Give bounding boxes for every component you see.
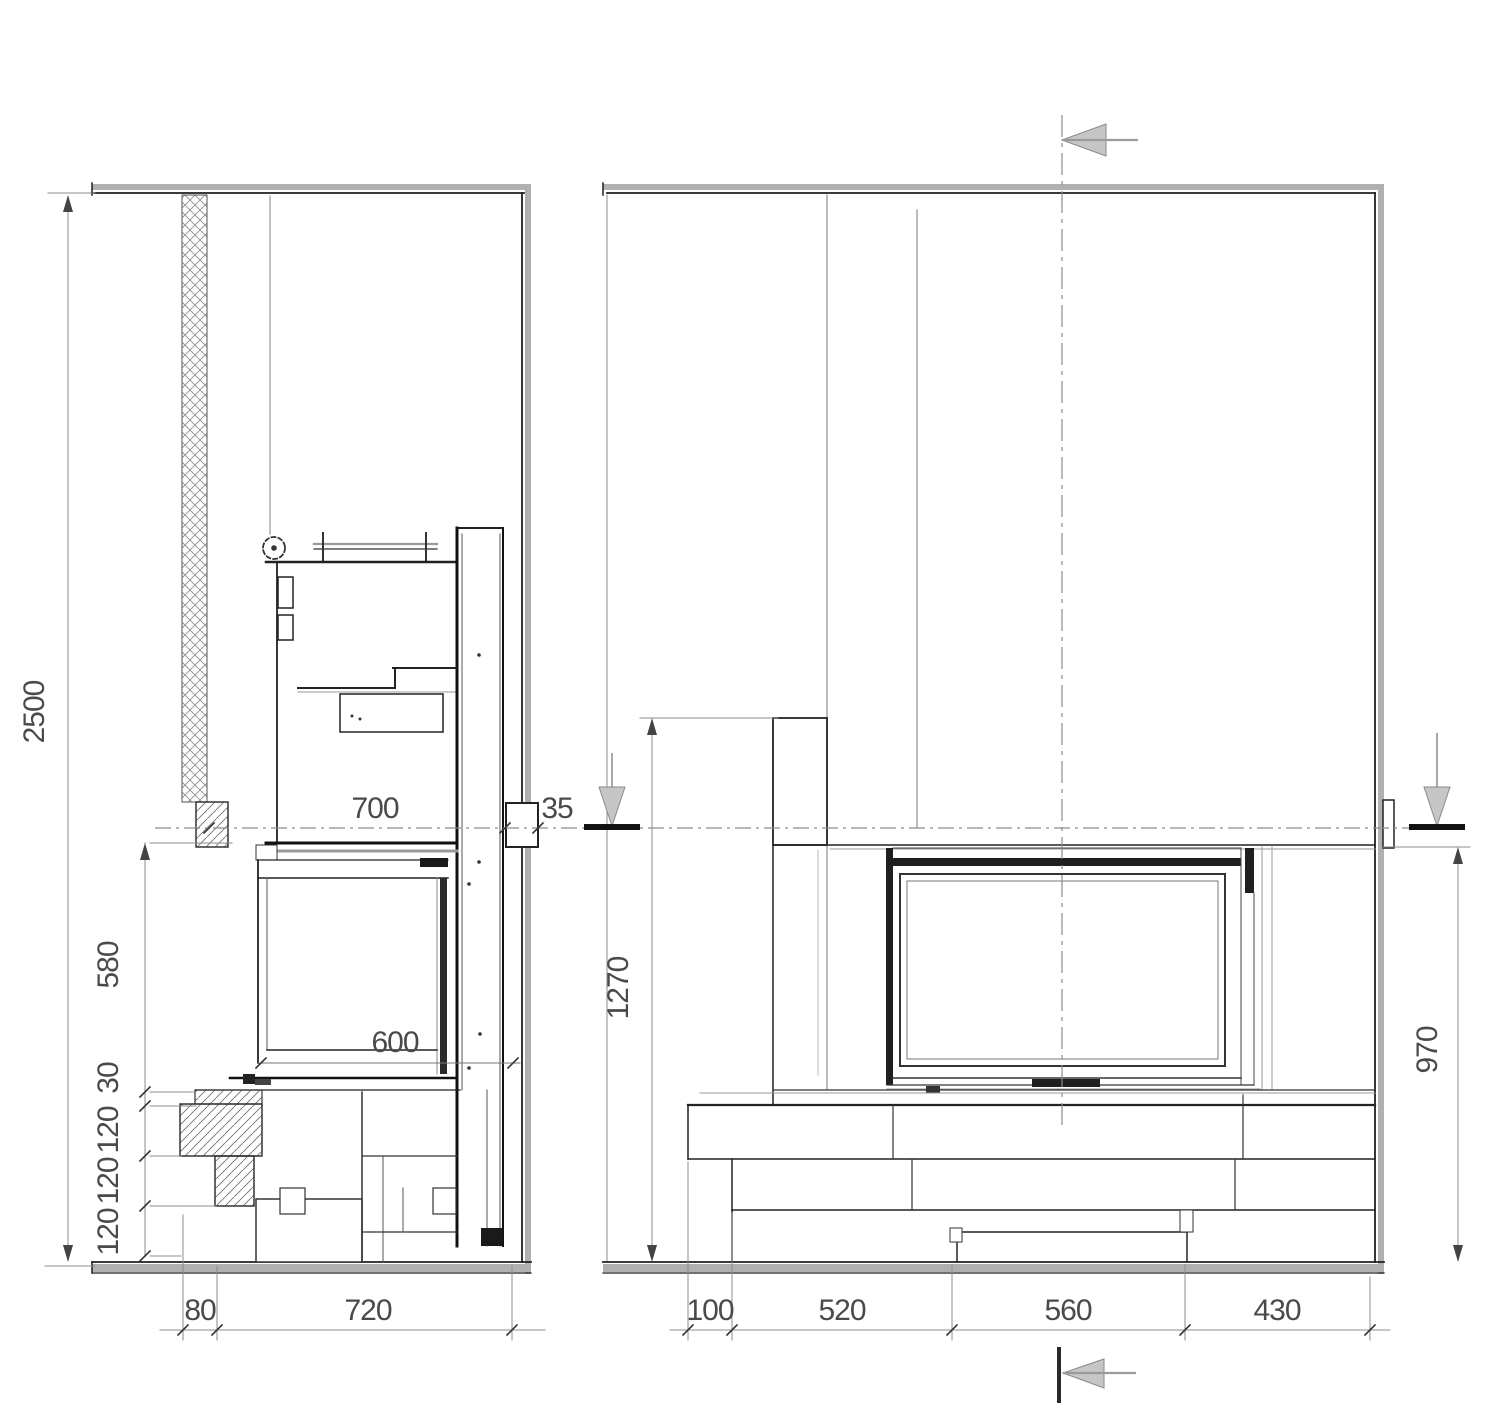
dim-430-label: 430	[1253, 1294, 1300, 1327]
door-hinge-top	[1245, 848, 1254, 893]
door-frame-top-bar	[893, 858, 1241, 866]
dim-80-label: 80	[184, 1294, 216, 1327]
base-block-lower-hatched	[215, 1156, 254, 1206]
glass-door-side	[440, 878, 447, 1074]
dim-520-label: 520	[818, 1294, 865, 1327]
base-dark-detail	[481, 1228, 503, 1246]
floor-slab-left	[92, 1264, 531, 1272]
insulation-strip-hatch	[182, 195, 207, 802]
door-handle	[1032, 1079, 1100, 1087]
door-top-profile	[420, 858, 448, 867]
base-block-upper-hatched	[180, 1104, 262, 1156]
dim-700-label: 700	[351, 792, 398, 825]
dim-120-label-3: 120	[92, 1208, 125, 1255]
dim-120-label-1: 120	[92, 1106, 125, 1153]
dim-120-label-2: 120	[92, 1157, 125, 1204]
side-pillar	[773, 718, 827, 845]
ceiling-slab-right	[603, 184, 1384, 190]
dim-100-label: 100	[686, 1294, 733, 1327]
dim-2500-label: 2500	[18, 680, 51, 743]
damper-actuator-upper	[278, 577, 293, 608]
door-hinge	[243, 1074, 255, 1084]
dim-970-label: 970	[1411, 1026, 1444, 1073]
dim-1270-label: 1270	[602, 956, 635, 1019]
dim-560-label: 560	[1044, 1294, 1091, 1327]
recuperator-box	[340, 694, 443, 732]
damper-actuator-lower	[278, 615, 293, 640]
door-frame-left-bar	[886, 848, 893, 1085]
dim-720-label: 720	[344, 1294, 391, 1327]
ceiling-slab-left	[92, 184, 531, 190]
dim-30-label: 30	[92, 1062, 125, 1094]
paper-background	[0, 0, 1500, 1427]
right-wall	[1378, 184, 1384, 1274]
dim-35-label: 35	[541, 792, 573, 825]
wall-pass-through-stub-right	[1383, 800, 1394, 848]
wall-pass-through-stub-left	[506, 803, 538, 847]
technical-drawing-page: 2500 580 30 120 120 120 80 720 700 600 3…	[0, 0, 1500, 1427]
dim-600-label: 600	[371, 1026, 418, 1059]
front-wall	[525, 184, 531, 1274]
front-step-block	[256, 1199, 362, 1262]
hearth-slab-hatched	[195, 1090, 262, 1104]
floor-slab-right	[603, 1264, 1384, 1272]
fireplace-section-drawing: 2500 580 30 120 120 120 80 720 700 600 3…	[0, 0, 1500, 1427]
dim-580-label: 580	[92, 941, 125, 988]
